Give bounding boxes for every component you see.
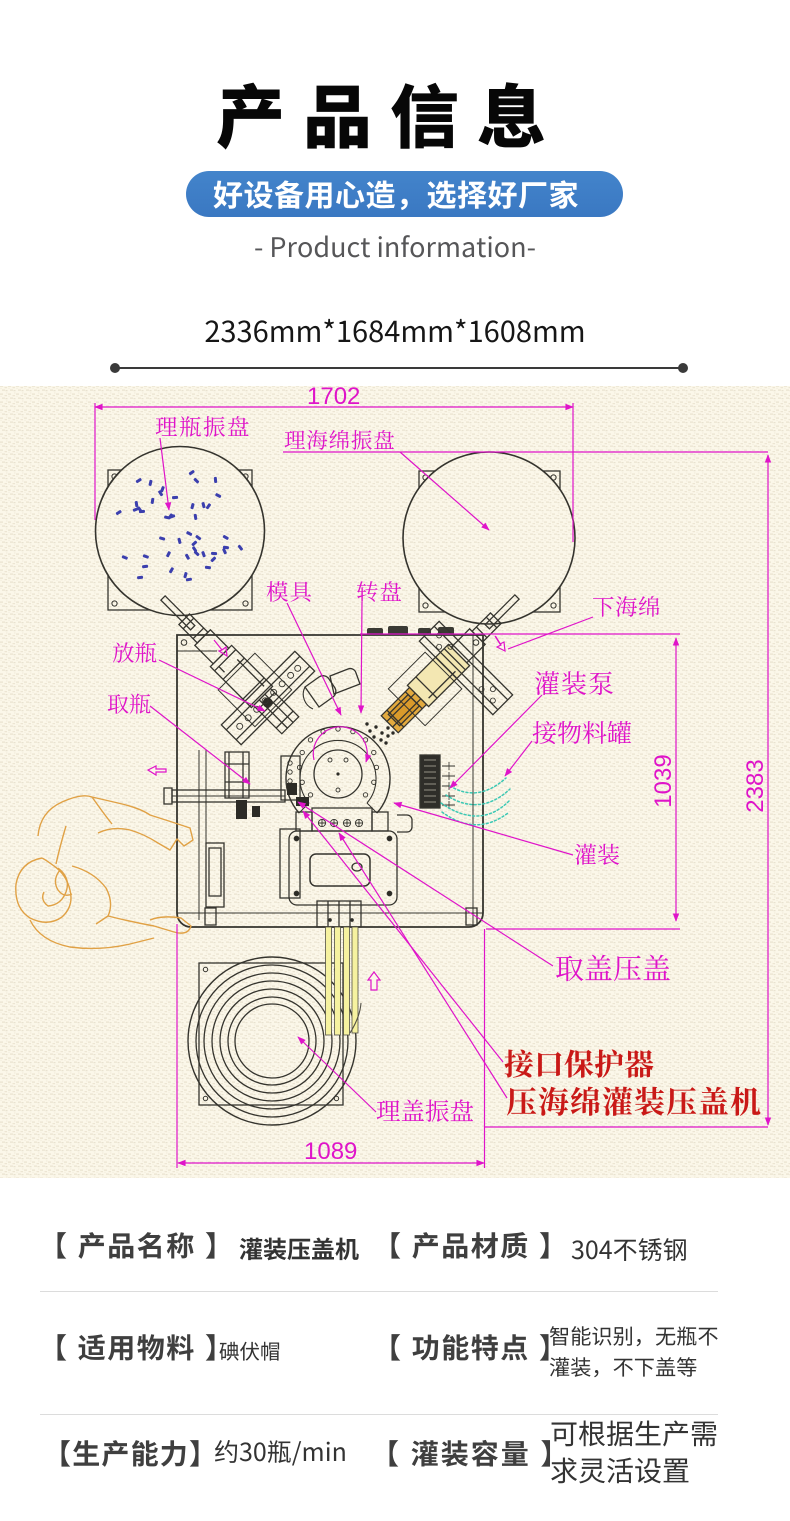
- svg-text:接物料罐: 接物料罐: [532, 714, 632, 750]
- svg-text:模具: 模具: [266, 575, 314, 607]
- svg-text:1039: 1039: [650, 754, 677, 807]
- svg-text:取瓶: 取瓶: [107, 688, 151, 719]
- svg-text:理盖振盘: 理盖振盘: [376, 1093, 474, 1128]
- svg-text:理海绵振盘: 理海绵振盘: [284, 424, 396, 455]
- svg-text:理瓶振盘: 理瓶振盘: [155, 410, 251, 442]
- svg-text:压海绵灌装压盖机: 压海绵灌装压盖机: [506, 1077, 762, 1122]
- svg-text:灌装泵: 灌装泵: [534, 664, 615, 701]
- svg-text:灌装: 灌装: [574, 837, 620, 870]
- svg-text:放瓶: 放瓶: [112, 636, 157, 668]
- svg-text:2383: 2383: [742, 759, 769, 812]
- svg-text:转盘: 转盘: [356, 575, 403, 607]
- svg-text:下海绵: 下海绵: [592, 590, 661, 622]
- svg-text:取盖压盖: 取盖压盖: [555, 947, 671, 988]
- svg-text:1089: 1089: [304, 1138, 357, 1165]
- svg-text:1702: 1702: [307, 386, 360, 410]
